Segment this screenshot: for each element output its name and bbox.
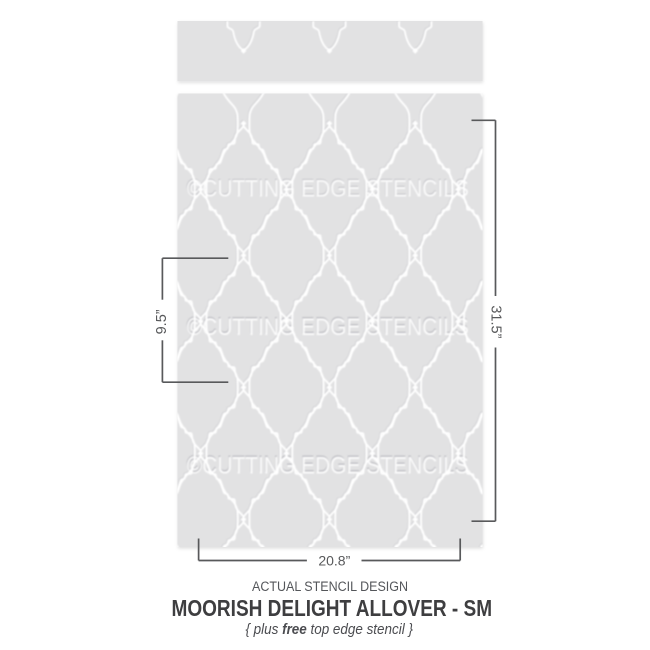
svg-text:©CUTTING EDGE STENCILS: ©CUTTING EDGE STENCILS xyxy=(187,176,469,203)
svg-text:©CUTTING EDGE STENCILS: ©CUTTING EDGE STENCILS xyxy=(187,453,469,480)
svg-text:9.5”: 9.5” xyxy=(154,309,170,334)
svg-text:©CUTTING EDGE STENCILS: ©CUTTING EDGE STENCILS xyxy=(187,314,469,341)
svg-text:20.8”: 20.8” xyxy=(318,552,350,568)
svg-text:{ plus free top edge stencil }: { plus free top edge stencil } xyxy=(245,622,413,638)
svg-text:MOORISH DELIGHT ALLOVER - SM: MOORISH DELIGHT ALLOVER - SM xyxy=(171,595,492,621)
svg-text:ACTUAL STENCIL DESIGN: ACTUAL STENCIL DESIGN xyxy=(252,579,408,594)
svg-text:31.5”: 31.5” xyxy=(488,305,504,338)
